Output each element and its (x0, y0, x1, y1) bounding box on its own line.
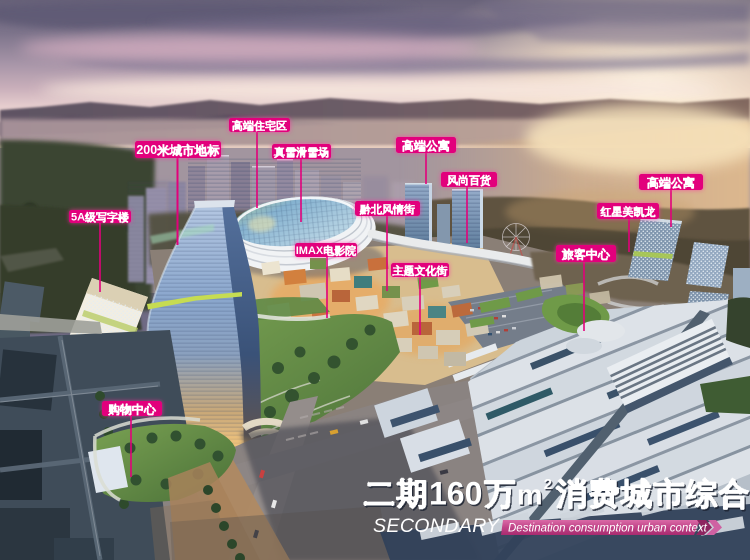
svg-text:160: 160 (429, 476, 482, 512)
svg-text:IMAX: IMAX (296, 245, 324, 257)
svg-text:m: m (517, 480, 543, 512)
svg-text:2: 2 (544, 476, 552, 493)
svg-text:200: 200 (136, 143, 157, 157)
svg-text:SECONDARY: SECONDARY (373, 515, 501, 537)
svg-text:Destination consumption urban: Destination consumption urban context (508, 523, 708, 535)
svg-text:5A: 5A (71, 211, 85, 223)
